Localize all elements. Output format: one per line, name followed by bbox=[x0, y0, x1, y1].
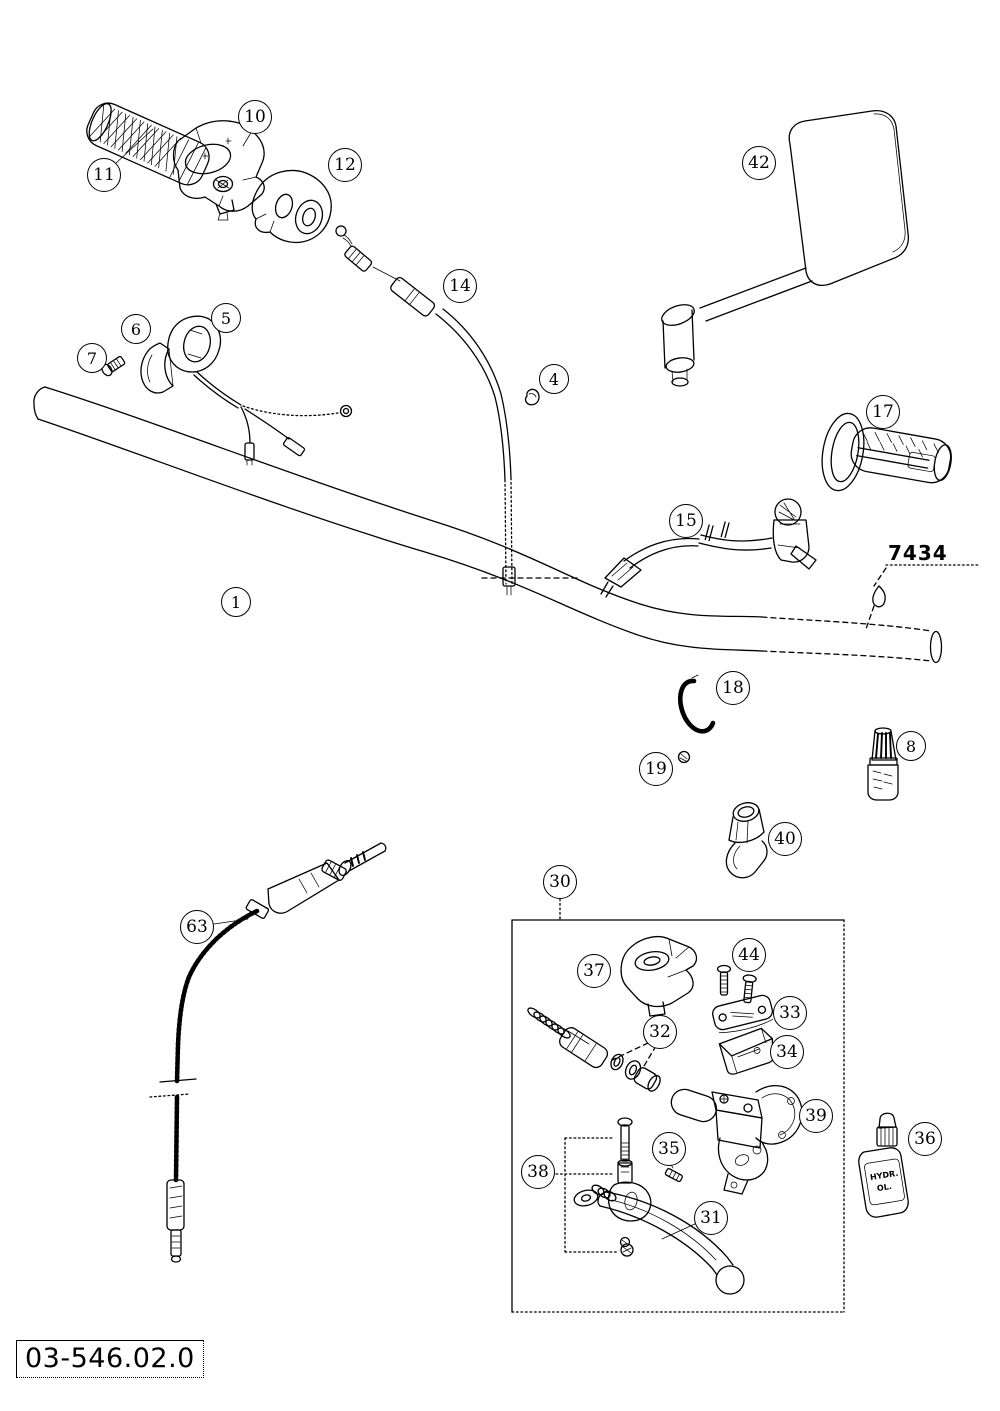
callout-38: 38 bbox=[521, 1155, 555, 1189]
callout-7: 7 bbox=[77, 343, 107, 373]
doc-number-box: 03-546.02.0 bbox=[16, 1340, 204, 1378]
callout-30: 30 bbox=[543, 865, 577, 899]
callout-31: 31 bbox=[694, 1201, 728, 1235]
callout-17: 17 bbox=[866, 395, 900, 429]
callout-32: 32 bbox=[643, 1015, 677, 1049]
callout-33: 33 bbox=[773, 996, 807, 1030]
callout-layer: 1456781011121415171819303132333435363738… bbox=[0, 0, 1000, 1411]
callout-42: 42 bbox=[742, 146, 776, 180]
callout-44: 44 bbox=[732, 938, 766, 972]
parts-diagram-page: 7434 bbox=[0, 0, 1000, 1411]
callout-10: 10 bbox=[238, 100, 272, 134]
callout-35: 35 bbox=[652, 1132, 686, 1166]
callout-1: 1 bbox=[221, 587, 251, 617]
callout-14: 14 bbox=[443, 269, 477, 303]
callout-40: 40 bbox=[768, 822, 802, 856]
callout-8: 8 bbox=[896, 731, 926, 761]
callout-36: 36 bbox=[908, 1122, 942, 1156]
callout-12: 12 bbox=[328, 148, 362, 182]
callout-37: 37 bbox=[577, 954, 611, 988]
callout-39: 39 bbox=[799, 1099, 833, 1133]
callout-19: 19 bbox=[639, 752, 673, 786]
callout-5: 5 bbox=[211, 303, 241, 333]
callout-6: 6 bbox=[121, 314, 151, 344]
callout-63: 63 bbox=[180, 910, 214, 944]
doc-number-text: 03-546.02.0 bbox=[25, 1343, 195, 1374]
callout-34: 34 bbox=[770, 1035, 804, 1069]
callout-15: 15 bbox=[669, 504, 703, 538]
callout-11: 11 bbox=[87, 158, 121, 192]
callout-18: 18 bbox=[716, 671, 750, 705]
callout-4: 4 bbox=[539, 364, 569, 394]
